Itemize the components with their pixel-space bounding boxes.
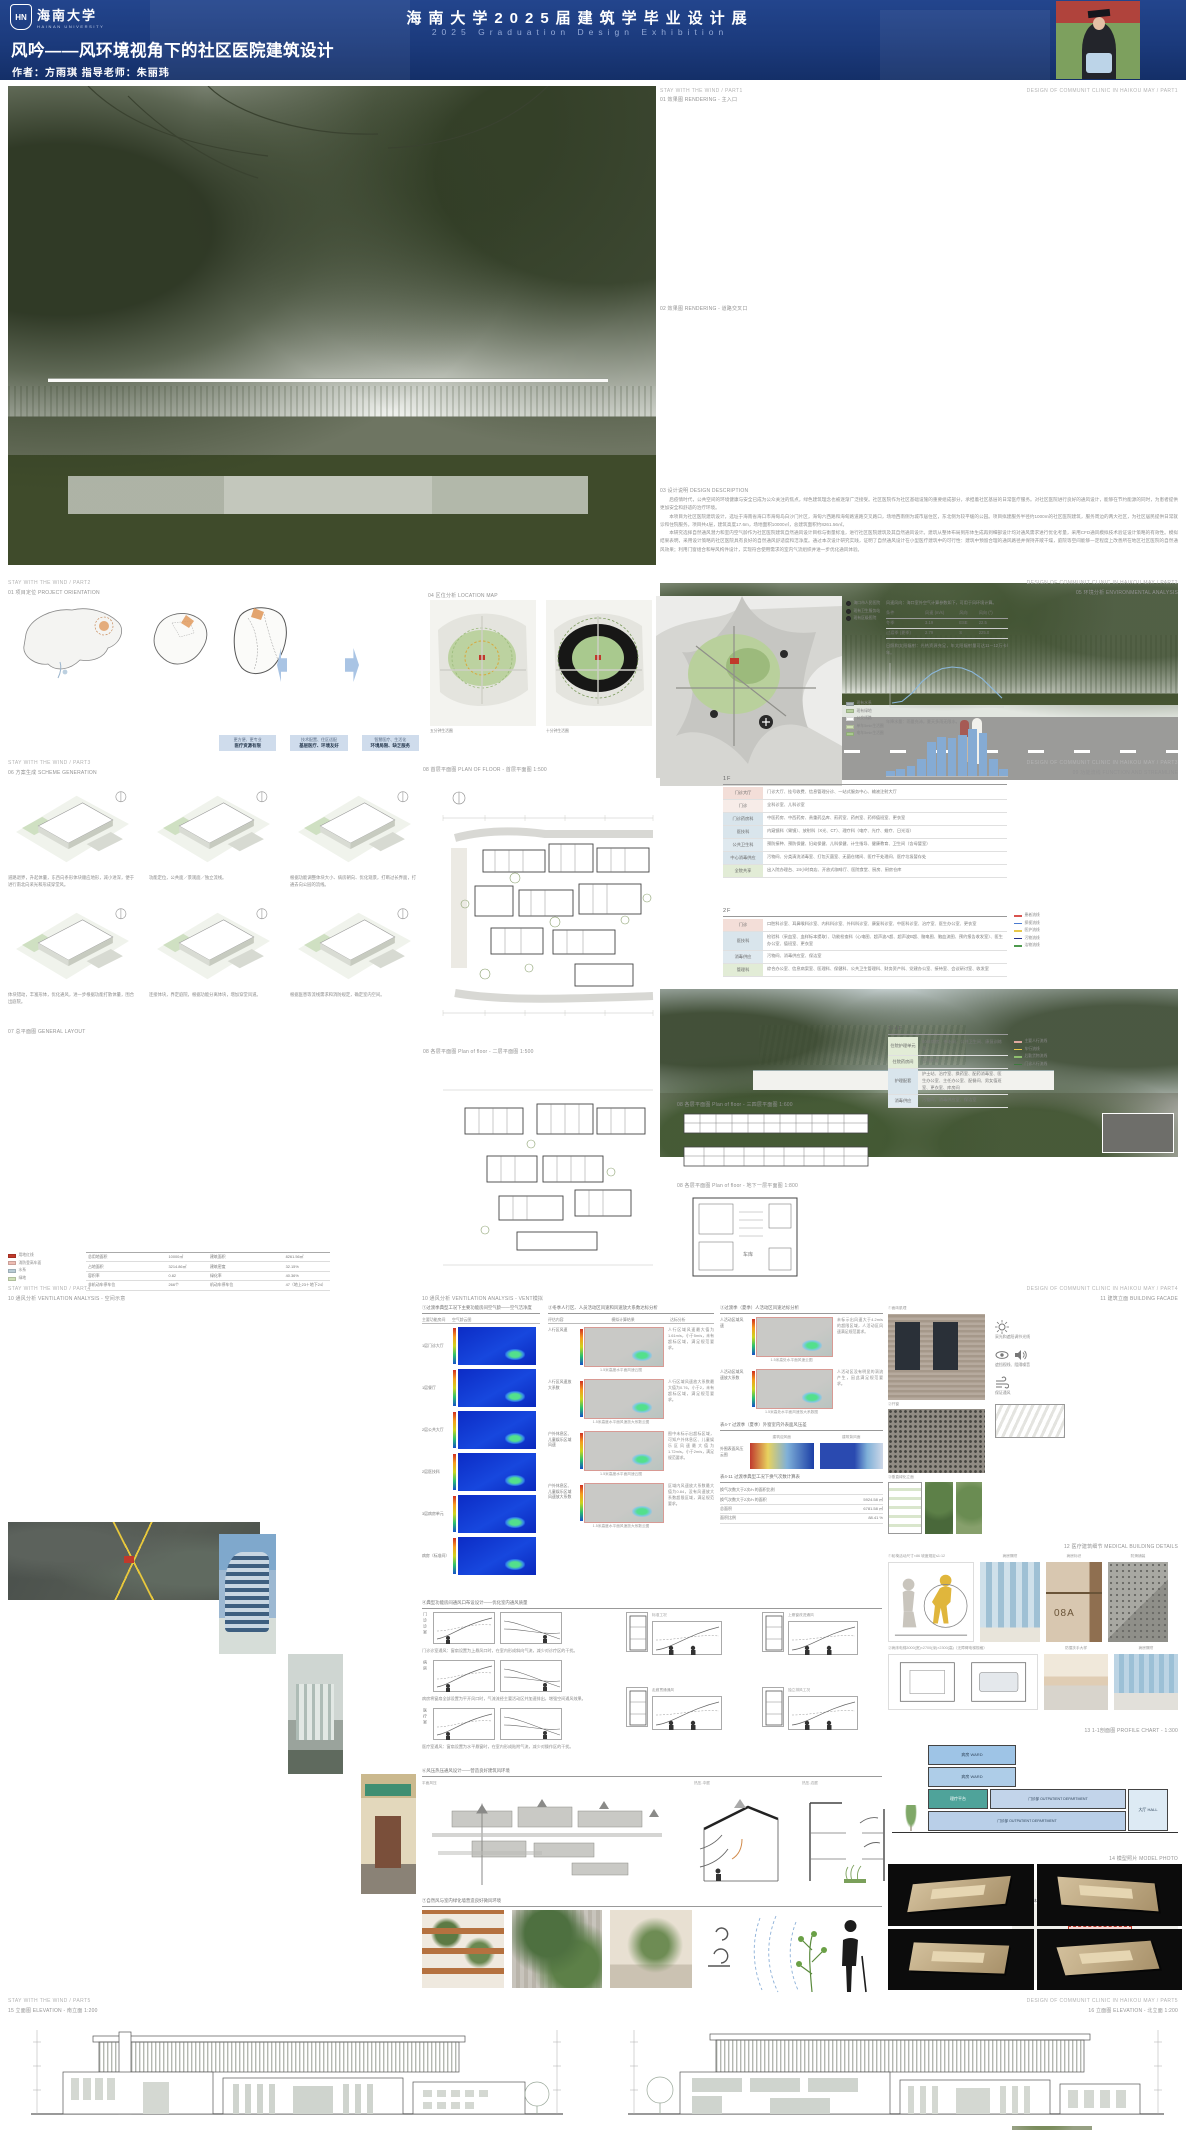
flow-legend-1: 患者流线探视流线医护流线污物流线洁物流线 <box>1014 912 1074 950</box>
function-rooms: 污物间、消毒供应室、保洁室 <box>763 951 1007 963</box>
part5-header-left: STAY WITH THE WIND / PART5 <box>8 1998 91 2004</box>
flow-line-swatch <box>1014 915 1022 917</box>
airflow-sketch <box>500 1708 562 1740</box>
rainfall-bar <box>917 759 926 776</box>
scheme-axon-drawing <box>290 780 416 872</box>
scheme-caption-text: 根据功能调整体块大小、病房朝向、优化观景，打断过长界面，打通去向公园的流线。 <box>290 874 416 888</box>
site-marker <box>124 1556 134 1563</box>
plant-shelf-photo <box>422 1910 504 1988</box>
hero-rendering <box>8 86 656 565</box>
layout-legend-item: 用地红线 <box>8 1252 78 1260</box>
compliance-note: 人行区域风速放大系数最大值为0.76，小于2，未有超标区域，满足规范要求。 <box>668 1379 714 1428</box>
function-rooms: 污物间、消毒供应室、保洁室 <box>918 1095 1008 1107</box>
airflow-sketch <box>433 1660 495 1692</box>
rain-note: 年降水量：雨量充沛，夏天多雨无限水。 <box>886 719 1008 726</box>
compliance-note: 图中未标示出超标区域，可知户外休息区、儿童娱乐区风速最大值为1.72m/s，小于… <box>668 1431 714 1480</box>
first-floor-plan: (ticks) <box>425 778 660 1030</box>
room-vent-note: 医疗室通风：窗扇设置为水平悬窗时，在室内形成贴附气流，减少对操作区的干扰。 <box>422 1744 612 1751</box>
area-legend-swatch <box>846 709 854 713</box>
plan-wind-pressure <box>422 1789 678 1889</box>
curtain-caption: 病房隔帘 <box>980 1554 1040 1559</box>
wind-table-header: 条件风速 (m/s)风向风向 (°) <box>886 609 1008 619</box>
cfd-analysis-row: 人行区风速放大系数 1.5米高度水平面风速放大系数云图 人行区域风速放大系数最大… <box>548 1379 714 1428</box>
ach-table-row: 总面积6781.58 ㎡ <box>720 1505 883 1514</box>
rainfall-bar <box>896 769 905 776</box>
function-category: 护理配套 <box>888 1069 918 1094</box>
scheme-caption-text: 根据医患等流线需求和消防规定，确定室内空间。 <box>290 991 416 998</box>
vent-case-label: 标准工况 <box>652 1613 722 1618</box>
cfd-summer-column: ③过渡季（夏季）人活动区风速达标分析 人活动区域风速 1.5米高处水平面风速云图… <box>720 1305 883 1524</box>
airflow-sketch <box>433 1708 495 1740</box>
part2-header-left: STAY WITH THE WIND / PART2 <box>8 580 91 586</box>
room-label: 3层病房单元 <box>422 1511 448 1516</box>
orientation-caption: 01 项目定位 PROJECT ORIENTATION <box>8 589 100 596</box>
air-age-row: 病房（标准间） <box>422 1537 540 1575</box>
function-rooms: 护士站、治疗室、换药室、配药消毒室、医生办公室、主任办公室、配餐间、男女值班室、… <box>918 1069 1008 1094</box>
greenwall-photo-2 <box>956 1482 982 1534</box>
greenwall-block: ⑦自然风与室内绿化墙营造良好微风环境 <box>422 1898 882 1998</box>
layout-table-row: 容积率0.82绿化率40.36% <box>86 1272 330 1281</box>
china-map <box>8 600 134 680</box>
scheme-diagram: 根据医患等流线需求和消防规定，确定室内空间。 <box>290 897 416 1005</box>
flow-legend-item: 主要人行流线 <box>1014 1038 1076 1046</box>
compare-card: 技术配置、住区适配 基层医疗、环境友好 <box>290 735 347 751</box>
model-photo-2 <box>1037 1864 1183 1926</box>
function-row: 消毒供应 污物间、消毒供应室、保洁室 <box>723 951 1007 964</box>
function-row: 中心消毒供应 污物间、分类清洗消毒室、打包灭菌室、无菌仓储间、医疗干处理间、医疗… <box>723 852 1007 865</box>
plan-mini <box>626 1612 648 1652</box>
cfd-analysis-row: 人行区风速 1.5米高度水平面风速云图 人行区域风速最大值为1.61m/s，小于… <box>548 1327 714 1376</box>
cfd2-h3: 达标分析 <box>670 1317 714 1323</box>
flow-legend-2: 主要人行流线车行流线后勤货物流线门诊人行流线 <box>1014 1038 1076 1068</box>
room-label: 2层医技科 <box>422 1469 448 1474</box>
plan2-caption: 08 各层平面图 Plan of floor - 二层平面图 1:500 <box>423 1048 534 1055</box>
tree-branches <box>8 86 656 246</box>
compliance-note: 区域内风速放大系数最大值为0.84，没有风速放大系数超限区域，满足规范要求。 <box>668 1483 714 1532</box>
rendering2-caption: 02 效果图 RENDERING - 道路交叉口 <box>660 305 748 312</box>
side-court-section <box>802 1789 892 1889</box>
description-paragraph-2: 本项目为社区医院建筑设计，选址于海南省海口市海甸岛白沙门片区，海甸六西路和海甸路… <box>660 513 1178 530</box>
building-roofline <box>48 378 608 382</box>
flow-legend-item: 污物流线 <box>1014 935 1074 943</box>
cfd-analysis-row: 人活动区域风速放大系数 1.5米高处水平面风速放大系数图 人活动区没有明显的涡流… <box>720 1369 883 1418</box>
layout-table-row: 非机动车停车位266个机动车停车位47（地上23＋地下24） <box>86 1281 330 1290</box>
wind-heatmap <box>584 1327 664 1367</box>
sun-note: 日照和太阳辐射：光热资源充足，年太阳辐射量可达11－12万卡/年。 <box>886 643 1008 657</box>
glass-entrance <box>296 1684 334 1740</box>
wind-heatmap <box>584 1379 664 1419</box>
layout-legend-swatch <box>8 1261 16 1265</box>
room-vent-row: 医疗室 医疗室通风：窗扇设置为水平悬窗时，在室内形成贴附气流，减少对操作区的干扰… <box>422 1708 612 1751</box>
ward-block-1: 病房 WARD <box>928 1745 1016 1765</box>
scheme-diagram: 连接体块，界定庭院，根据功能分离体块，增加穿堂风道。 <box>149 897 275 1005</box>
airflow-sketch <box>500 1660 562 1692</box>
air-age-row: 2层公共大厅 <box>422 1411 540 1449</box>
cfd-air-age-column: ①过渡季典型工况下主要功能房间空气龄——空气洁净度 主要功能房间 空气龄云图 1… <box>422 1305 540 1579</box>
profile-section: 病房 WARD 病房 WARD 理疗平台 门诊部 OUTPATIENT DEPA… <box>888 1737 1182 1845</box>
model-photo-3 <box>888 1929 1034 1991</box>
scheme-diagram: 功能定位，公共面／景观面／独立流线。 <box>149 780 275 888</box>
city-location-map <box>656 596 842 786</box>
vent-case-label: 独立排风工况 <box>788 1688 858 1693</box>
air-age-heatmap <box>458 1369 536 1407</box>
heatmap-caption: 1.5米高处水平面风速放大系数图 <box>750 1410 833 1415</box>
function-rooms: 中医药房、中西药房、贵重药品库、煎药室、药剂室、药师值班室、更衣室 <box>763 813 1007 825</box>
wind-table-row: 过渡季 (夏季)2.79S225.0 <box>886 629 1008 639</box>
air-age-row: 2层医技科 <box>422 1453 540 1491</box>
paving-photo <box>1108 1562 1168 1642</box>
speaker-icon <box>1013 1348 1027 1362</box>
interior-green-photo <box>610 1910 692 1988</box>
rainfall-bar <box>989 759 998 776</box>
function-row: 护理配套 护士站、治疗室、换药室、配药消毒室、医生办公室、主任办公室、配餐间、男… <box>888 1069 1008 1095</box>
ach-table-row: 换气次数大于2次/h 的面积比例 <box>720 1486 883 1495</box>
flow-line-swatch <box>1014 923 1022 925</box>
floor-2f-heading: 2F <box>723 908 1007 917</box>
compare-card: 智慧医疗、生活化 环境局限、缺乏服务 <box>362 735 419 751</box>
ground-line <box>892 1832 1178 1833</box>
air-age-row: 3层病房单元 <box>422 1495 540 1533</box>
env-analysis-block: 风速风向：海口室外空气计算参数如下，可用于风环境计算。 条件风速 (m/s)风向… <box>886 600 1008 777</box>
model-photo-1 <box>888 1864 1034 1926</box>
general-layout-caption: 07 总平面图 GENERAL LAYOUT <box>8 1028 85 1035</box>
plan-mini <box>626 1687 648 1727</box>
room-label: 1层餐厅 <box>422 1385 448 1390</box>
cfd2-h1: 评估内容 <box>548 1317 576 1323</box>
rainfall-bar <box>948 738 957 775</box>
function-category: 住院护理单元 <box>888 1037 918 1055</box>
rail-caption: 防撞扶手大样 <box>1044 1646 1108 1651</box>
facade-materials-column: ①面砖肌理 ②开窗 ③垂直绿化立面 <box>888 1305 985 1534</box>
function-category: 管理科 <box>723 964 763 976</box>
rainfall-bar-chart <box>886 729 1008 777</box>
ach-table-row: 面积比例88.41 % <box>720 1514 883 1523</box>
function-table-1f: 1F 门诊大厅 门诊大厅、挂号收费、信息管理分诊、一站式服务中心、输液注射大厅 … <box>723 776 1007 878</box>
wind-heatmap <box>584 1483 664 1523</box>
section-mini <box>788 1696 858 1730</box>
function-row: 门诊大厅 门诊大厅、挂号收费、信息管理分诊、一站式服务中心、输液注射大厅 <box>723 787 1007 800</box>
svg-text:车库: 车库 <box>743 1251 753 1258</box>
function-category: 医技科 <box>723 932 763 950</box>
north-elevation-drawing <box>620 2020 1172 2126</box>
plan-mini <box>762 1687 784 1727</box>
function-row: 医技科 检验科（采血室、血样标本提取）、功能检查科（心电图、超声波A超、超声波B… <box>723 932 1007 951</box>
scheme-diagram: 根据功能调整体块大小、病房朝向、优化观景，打断过长界面，打通去向公园的流线。 <box>290 780 416 888</box>
room-label: 2层公共大厅 <box>422 1427 448 1432</box>
accessibility-diagram <box>888 1562 974 1642</box>
part3-header-right: DESIGN OF COMMUNIT CLINIC IN HAIKOU MAY … <box>1012 760 1178 766</box>
author-face <box>1093 17 1105 30</box>
roof-detail-drawing <box>995 1404 1065 1438</box>
layout-legend-swatch <box>8 1269 16 1273</box>
part5-header-right: DESIGN OF COMMUNIT CLINIC IN HAIKOU MAY … <box>860 1998 1178 2004</box>
heatmap-caption: 1.5米高度水平面风速云图 <box>578 1472 664 1477</box>
handrail-photo <box>1044 1654 1108 1710</box>
air-age-heatmap <box>458 1411 536 1449</box>
layout-table-row: 总用地面积10000㎡建筑面积8261.56㎡ <box>86 1253 330 1262</box>
cfd2-title: ②冬季人行区、人员活动区风速和风速放大系数达标分析 <box>548 1305 714 1314</box>
model-building <box>931 1951 985 1963</box>
function-row: 医技科 内窥镜科（胃镜）、放射科（X光、CT）、理疗科（电疗、光疗、蜡疗、日光浴… <box>723 826 1007 839</box>
greenwall-facade-photo <box>512 1910 602 1988</box>
sun-icon <box>995 1320 1009 1334</box>
wind-icon <box>995 1376 1009 1390</box>
temperature-line-chart <box>886 659 1006 711</box>
point-legend-icon <box>846 609 851 614</box>
wind-table-row: 冬季3.19ESE22.5 <box>886 619 1008 629</box>
cfd-winter-column: ②冬季人行区、人员活动区风速和风速放大系数达标分析 评估内容 模拟计算结果 达标… <box>548 1305 714 1535</box>
flow-legend-item: 患者流线 <box>1014 912 1074 920</box>
details-caption: 12 医疗建筑细节 MEDICAL BUILDING DETAILS <box>1000 1543 1178 1550</box>
vent-case-label: 上悬窗改进通风 <box>788 1613 858 1618</box>
curved-facade <box>225 1552 269 1632</box>
poster-header: HN 海南大学 HAINAN UNIVERSITY 海南大学2025届建筑学毕业… <box>0 0 1186 80</box>
function-rooms: 50床病房、茶水间、公共卫生间、康复训练室 <box>918 1037 1008 1055</box>
clinic-photo-3 <box>361 1774 416 1894</box>
layout-data-table: 总用地面积10000㎡建筑面积8261.56㎡占地面积3214.86㎡建筑密度3… <box>86 1252 330 1291</box>
eye-icon <box>995 1348 1009 1362</box>
ward-block-2: 病房 WARD <box>928 1767 1016 1787</box>
flow-line-swatch <box>1014 1041 1022 1043</box>
function-rooms: 污物间、分类清洗消毒室、打包灭菌室、无菌仓储间、医疗干处理间、医疗垃圾暂存处 <box>763 852 1007 864</box>
function-row: 住院药房间 住院药房 <box>888 1056 1008 1069</box>
hospital-photo-1 <box>219 1534 276 1654</box>
function-category: 中心消毒供应 <box>723 852 763 864</box>
function-rooms: 内窥镜科（胃镜）、放射科（X光、CT）、理疗科（电疗、光疗、蜡疗、日光浴） <box>763 826 1007 838</box>
function-category: 消毒供应 <box>723 951 763 963</box>
hospital-photo-2 <box>288 1654 343 1774</box>
function-row: 消毒供应 污物间、消毒供应室、保洁室 <box>888 1095 1008 1108</box>
room-type-label: 医疗室 <box>422 1708 428 1726</box>
cfd-analysis-row: 户外休息区、儿童娱乐区域风速放大系数 1.5米高度水平面风速放大系数云图 区域内… <box>548 1483 714 1532</box>
wind-plant-diagram <box>700 1910 880 1998</box>
point-legend-icon <box>846 601 851 606</box>
description-caption: 03 设计说明 DESIGN DESCRIPTION <box>660 487 748 494</box>
mini-map-inset <box>1102 1113 1174 1153</box>
air-age-heatmap <box>458 1327 536 1365</box>
airflow-sketch <box>433 1612 495 1644</box>
function-category: 全院共享 <box>723 865 763 877</box>
facade-cap-2: ②开窗 <box>888 1402 985 1407</box>
function-table-34f: 3/4F 住院护理单元 50床病房、茶水间、公共卫生间、康复训练室 住院药房间 … <box>888 1026 1008 1108</box>
ach-table-row: 换气次数大于2次/h 的面积5924.58 ㎡ <box>720 1495 883 1504</box>
outpatient-block-2: 门诊部 OUTPATIENT DEPARTMENT <box>928 1811 1126 1831</box>
wind-heatmap <box>584 1431 664 1471</box>
vent-case: 独立排风工况 <box>762 1687 882 1756</box>
rainfall-bar <box>927 742 936 776</box>
scheme-axon-drawing <box>8 897 134 989</box>
ward-photo-caption: 病房隔帘 <box>1114 1646 1178 1651</box>
header-decor-block <box>880 10 1050 80</box>
section-mini <box>652 1621 722 1655</box>
scheme-generation-grid: 道路退界，升起体量，东西向条形体块顺应地形，减小进深，便于进行南北向采光和形成穿… <box>8 780 416 1005</box>
facade-caption: 11 建筑立面 BUILDING FACADE <box>1012 1295 1178 1302</box>
room-type-label: 病房 <box>422 1660 428 1672</box>
heatmap-caption: 1.5米高度水平面风速放大系数云图 <box>578 1420 664 1425</box>
function-category: 公共卫生科 <box>723 839 763 851</box>
air-age-row: 1层餐厅 <box>422 1369 540 1407</box>
function-table-2f: 2F 门诊 口腔科诊室、耳鼻喉科诊室、内科科诊室、外科科诊室、康复科诊室、中医科… <box>723 908 1007 977</box>
air-age-heatmap <box>458 1537 536 1575</box>
model-photos <box>888 1864 1182 1990</box>
layout-legend-item: 消防登高车面 <box>8 1260 78 1268</box>
location-map-caption: 04 区位分析 LOCATION MAP <box>428 592 498 599</box>
basement-plan: 车库 <box>685 1192 805 1282</box>
bed-elevator-diagram <box>888 1654 1038 1710</box>
profile-caption: 13 1-1剖面图 PROFILE CHART - 1:300 <box>1000 1727 1178 1734</box>
evaluation-label: 户外休息区、儿童娱乐区域风速 <box>548 1431 574 1480</box>
cfd3-title: ③过渡季（夏季）人活动区风速达标分析 <box>720 1305 883 1314</box>
plan-pressure-label: 平面风压 <box>422 1781 678 1786</box>
area-legend-swatch <box>846 725 854 729</box>
heatmap-caption: 1.5米高处水平面风速云图 <box>750 1358 833 1363</box>
part1-header-right: DESIGN OF COMMUNIT CLINIC IN HAIKOU MAY … <box>860 88 1178 94</box>
evaluation-label: 人行区风速放大系数 <box>548 1379 574 1428</box>
sect6-title: ⑥风压热压通风设计——营造良好建筑风环境 <box>422 1768 882 1777</box>
scheme-axon-drawing <box>149 780 275 872</box>
facade-icon-notes: 采光和遮阳调节光线 遮挡视线、阻隔噪音 保证通风 <box>995 1320 1073 1438</box>
scheme-caption-text: 功能定位，公共面／景观面／独立流线。 <box>149 874 275 881</box>
pressure-design-block: ⑥风压热压通风设计——营造良好建筑风环境 平面风压 热压-中庭 热压-边庭 <box>422 1768 882 1894</box>
description-paragraph-1: 后疫情时代，公共空间的环境健康与安全已成为公众关注的焦点，绿色建筑理念也被逐渐广… <box>660 496 1178 513</box>
compare-arrow-right <box>345 648 359 682</box>
area-legend-swatch <box>846 732 854 736</box>
flow-line-swatch <box>1014 1056 1022 1058</box>
layout-legend-swatch <box>8 1254 16 1258</box>
university-name-cn: 海南大学 <box>37 5 104 24</box>
fourth-floor-strip-plan <box>680 1143 872 1170</box>
cfd2-h2: 模拟计算结果 <box>576 1317 670 1323</box>
brick-window-photo <box>888 1314 985 1400</box>
third-floor-strip-plan <box>680 1110 872 1137</box>
part1-header-left: STAY WITH THE WIND / PART1 <box>660 88 743 94</box>
facade-cap-3: ③垂直绿化立面 <box>888 1475 985 1480</box>
south-elevation-drawing <box>23 2020 571 2126</box>
project-title: 风吟——风环境视角下的社区医院建筑设计 <box>11 37 334 61</box>
rainfall-bar <box>968 729 977 776</box>
function-row: 全院共享 出入院办理台、24小时商店、开放式咖啡厅、医院食堂、厨房、厨房仓库 <box>723 865 1007 878</box>
cfd1-col2-header: 空气龄云图 <box>452 1317 471 1323</box>
rainfall-bar <box>979 733 988 776</box>
vent2-caption: 10 通风分析 VENTILATION ANALYSIS - VENT模拟 <box>422 1295 543 1302</box>
vent-case: 上悬窗改进通风 <box>762 1612 882 1681</box>
point-legend-icon <box>846 616 851 621</box>
sect7-title: ⑦自然风与室内绿化墙营造良好微风环境 <box>422 1898 882 1907</box>
function-category: 住院药房间 <box>888 1056 918 1068</box>
airflow-sketch <box>500 1612 562 1644</box>
compare-cards: 更方便、更专业 医疗资源有限 技术配置、住区适配 基层医疗、环境友好 智慧医疗、… <box>219 735 419 751</box>
planb1-caption: 08 各层平面图 Plan of floor - 地下一层平面图 1:800 <box>677 1182 798 1189</box>
flow-line-swatch <box>1014 930 1022 932</box>
greenwall-photo-1 <box>925 1482 953 1534</box>
scheme-diagram: 体块错动，丰富形体，优化通风，进一步根据功能打散体量，围合出庭院。 <box>8 897 134 1005</box>
plan1-caption: 08 首层平面图 PLAN OF FLOOR - 首层平面图 1:500 <box>423 766 547 773</box>
cfd-analysis-row: 人活动区域风速 1.5米高处水平面风速云图 未标示出风速大于4.2m/s 的超限… <box>720 1317 883 1366</box>
cfd1-col1-header: 主要功能房间 <box>422 1317 452 1323</box>
plan-mini <box>762 1612 784 1652</box>
function-rooms: 综合办公室、信息病案室、医理科、保健科、公共卫生管理科、财务资产科、党建办公室、… <box>763 964 1007 976</box>
exhibition-title: 海南大学2025届建筑学毕业设计展 <box>290 7 870 28</box>
room-vent-note: 病房将窗扇全部设置为平开风口时，气流流经主要活动区并加速排出，增强空间通风效果。 <box>422 1696 612 1703</box>
cfd1-title: ①过渡季典型工况下主要功能房间空气龄——空气洁净度 <box>422 1305 540 1314</box>
hall-block: 大厅 HALL <box>1128 1789 1168 1831</box>
evaluation-label: 人活动区域风速放大系数 <box>720 1369 746 1418</box>
air-age-row: 1层门诊大厅 <box>422 1327 540 1365</box>
room-vent-row: 病房 病房将窗扇全部设置为平开风口时，气流流经主要活动区并加速排出，增强空间通风… <box>422 1660 612 1703</box>
radius-map-10min <box>546 600 652 726</box>
room-vent-row: 门诊诊室 门诊诊室通风：窗扇设置为上悬风口时，在室内形成斜向气流，减少对诊疗区的… <box>422 1612 612 1655</box>
function-row: 门诊 全科诊室、儿科诊室 <box>723 800 1007 813</box>
university-name-en: HAINAN UNIVERSITY <box>37 24 104 29</box>
wind-note: 风速风向：海口室外空气计算参数如下，可用于风环境计算。 <box>886 600 1008 607</box>
room-sign-text: 08A <box>1054 1608 1075 1619</box>
flow-line-swatch <box>1014 945 1022 947</box>
flow-caption: 09 功能流线 FUNCTION AND STREAMLINE <box>1012 769 1178 776</box>
function-rooms: 检验科（采血室、血样标本提取）、功能检查科（心电图、超声波A超、超声波B超、脑电… <box>763 932 1007 950</box>
exhibition-title-en: 2025 Graduation Design Exhibition <box>290 27 870 37</box>
function-rooms: 口腔科诊室、耳鼻喉科诊室、内科科诊室、外科科诊室、康复科诊室、中医科诊室、治疗室… <box>763 919 1007 931</box>
function-rooms: 预防接种、预防保健、妇幼保健、儿科保健、计生指导、健康教育、卫生间（含母婴室） <box>763 839 1007 851</box>
t47-title: 表4-7 过渡季（夏季）外窗室内外表面风压差 <box>720 1422 883 1431</box>
curtain-photo <box>980 1562 1040 1642</box>
function-row: 公共卫生科 预防接种、预防保健、妇幼保健、儿科保健、计生指导、健康教育、卫生间（… <box>723 839 1007 852</box>
area-legend-swatch <box>846 717 854 721</box>
scheme-diagram: 道路退界，升起体量，东西向条形体块顺应地形，减小进深，便于进行南北向采光和形成穿… <box>8 780 134 888</box>
rainfall-bar <box>958 735 967 776</box>
scheme-caption-text: 连接体块，界定庭院，根据功能分离体块，增加穿堂风道。 <box>149 991 275 998</box>
function-category: 门诊大厅 <box>723 787 763 799</box>
flow-legend-item: 车行流线 <box>1014 1046 1076 1054</box>
vent1-caption: 10 通风分析 VENTILATION ANALYSIS - 空间示意 <box>8 1295 125 1302</box>
perforated-brick-photo <box>888 1409 985 1473</box>
model-photo-4 <box>1037 1929 1183 1991</box>
windward-pressure-map <box>750 1443 814 1469</box>
layout-legend: 用地红线消防登高车面水系绿地 <box>8 1252 78 1282</box>
evaluation-label: 人行区风速 <box>548 1327 574 1376</box>
rainfall-bar <box>999 769 1008 776</box>
function-category: 门诊 <box>723 919 763 931</box>
atrium-stack-section <box>694 1789 786 1889</box>
privacy-note: 遮挡视线、阻隔噪音 <box>995 1362 1073 1368</box>
vent-case-label: 走廊贯通通风 <box>652 1688 722 1693</box>
sign-caption: 病房标识 <box>1046 1554 1102 1559</box>
vent-case: 标准工况 <box>626 1612 746 1681</box>
outpatient-block-1: 门诊部 OUTPATIENT DEPARTMENT <box>990 1789 1126 1809</box>
area-legend-swatch <box>846 702 854 706</box>
vent-case: 走廊贯通通风 <box>626 1687 746 1756</box>
compliance-note: 人活动区没有明显的涡流产生，因此满足规范要求。 <box>837 1369 883 1418</box>
part4-header-left: STAY WITH THE WIND / PART4 <box>8 1286 91 1292</box>
heatmap-caption: 1.5米高度水平面风速放大系数云图 <box>578 1524 664 1529</box>
scheme-caption-text: 道路退界，升起体量，东西向条形体块顺应地形，减小进深，便于进行南北向采光和形成穿… <box>8 874 134 888</box>
building-ground-floor <box>68 476 588 514</box>
compliance-note: 未标示出风速大于4.2m/s 的超限区域，人活动区风速满足规范要求。 <box>837 1317 883 1366</box>
layout-legend-item: 水系 <box>8 1267 78 1275</box>
evaluation-label: 人活动区域风速 <box>720 1317 746 1366</box>
t47-col1: 建筑迎风面 <box>750 1435 814 1440</box>
second-floor-plan <box>425 1060 660 1285</box>
university-logo: HN 海南大学 HAINAN UNIVERSITY <box>10 4 104 30</box>
rainfall-bar <box>907 766 916 776</box>
function-category: 消毒供应 <box>888 1095 918 1107</box>
wheelchair-caption: ①轮椅活动尺寸×86 坡度规定≤1:12 <box>888 1554 974 1559</box>
leeward-pressure-map <box>820 1443 884 1469</box>
radius-map-5min-caption: 五分钟生活圈 <box>430 728 453 736</box>
university-shield-icon: HN <box>10 4 32 30</box>
scheme-axon-drawing <box>8 780 134 872</box>
design-description: 后疫情时代，公共空间的环境健康与安全已成为公众关注的焦点，绿色建筑理念也被逐渐广… <box>660 496 1178 554</box>
function-category: 医技科 <box>723 826 763 838</box>
